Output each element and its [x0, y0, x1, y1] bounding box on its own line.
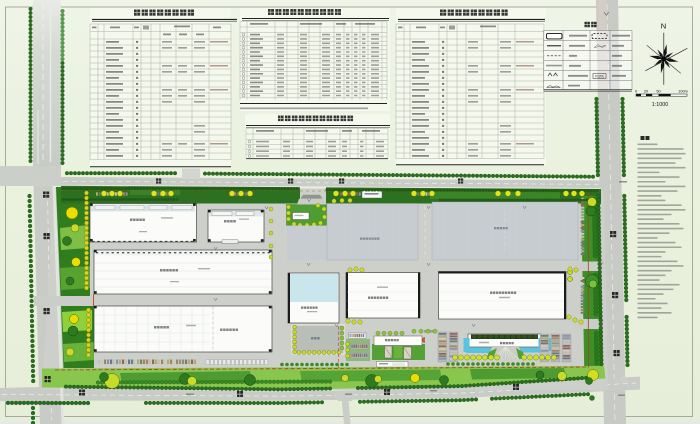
svg-text:P(20): P(20) [595, 75, 603, 79]
svg-text:20: 20 [644, 90, 648, 94]
svg-text:1:1000: 1:1000 [652, 102, 669, 108]
svg-text:50: 50 [656, 90, 660, 94]
svg-text:N: N [661, 22, 666, 31]
svg-text:0: 0 [635, 90, 637, 94]
svg-text:100m: 100m [678, 90, 688, 94]
